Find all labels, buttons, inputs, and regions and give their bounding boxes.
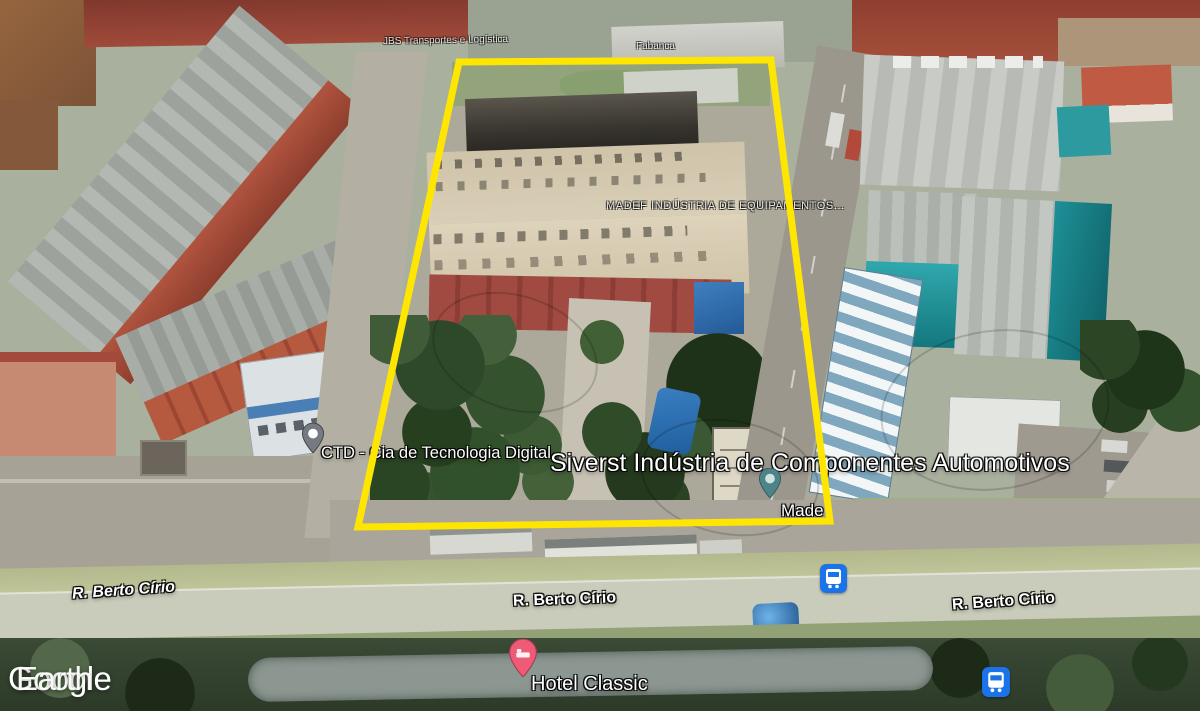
parked-bus xyxy=(430,525,533,555)
poi-label-madef[interactable]: MADEF INDÚSTRIA DE EQUIPAMENTOS... xyxy=(606,200,845,212)
made-place-pin[interactable] xyxy=(759,468,781,498)
poi-label-made[interactable]: Made xyxy=(781,501,824,521)
guard-hut xyxy=(140,440,187,476)
courtyard xyxy=(1058,18,1200,66)
poi-label-ctd[interactable]: CTD - Cia de Tecnologia Digital xyxy=(321,444,551,463)
bus-stop-icon[interactable] xyxy=(820,564,847,593)
google-earth-map-canvas[interactable]: JBS Transportes e Logística Fabanca MADE… xyxy=(0,0,1200,711)
street-label-berto-cirio-center: R. Berto Círio xyxy=(513,589,617,611)
poi-label-hotel-classic[interactable]: Hotel Classic xyxy=(531,673,648,696)
poi-label-siverst[interactable]: Siverst Indústria de Componentes Automot… xyxy=(550,449,1070,478)
ctd-place-pin[interactable] xyxy=(302,423,324,453)
poi-label-fabanca[interactable]: Fabanca xyxy=(636,41,675,52)
teal-shed xyxy=(1057,105,1112,158)
dirt-patch xyxy=(0,100,58,170)
pin-center-dot xyxy=(765,474,775,484)
dirt-patch xyxy=(0,0,96,106)
pin-center-dot xyxy=(308,429,318,439)
small-building xyxy=(0,352,116,470)
parked-car xyxy=(1101,439,1128,453)
logo-earth-text: Earth xyxy=(16,660,92,698)
poi-label-transportes[interactable]: JBS Transportes e Logística xyxy=(383,34,508,47)
warehouse-roof xyxy=(860,55,1064,192)
bus-stop-icon[interactable] xyxy=(982,667,1010,697)
fence xyxy=(0,479,335,483)
parked-trucks-row xyxy=(893,56,1043,68)
hotel-classic-pin[interactable] xyxy=(509,639,537,677)
